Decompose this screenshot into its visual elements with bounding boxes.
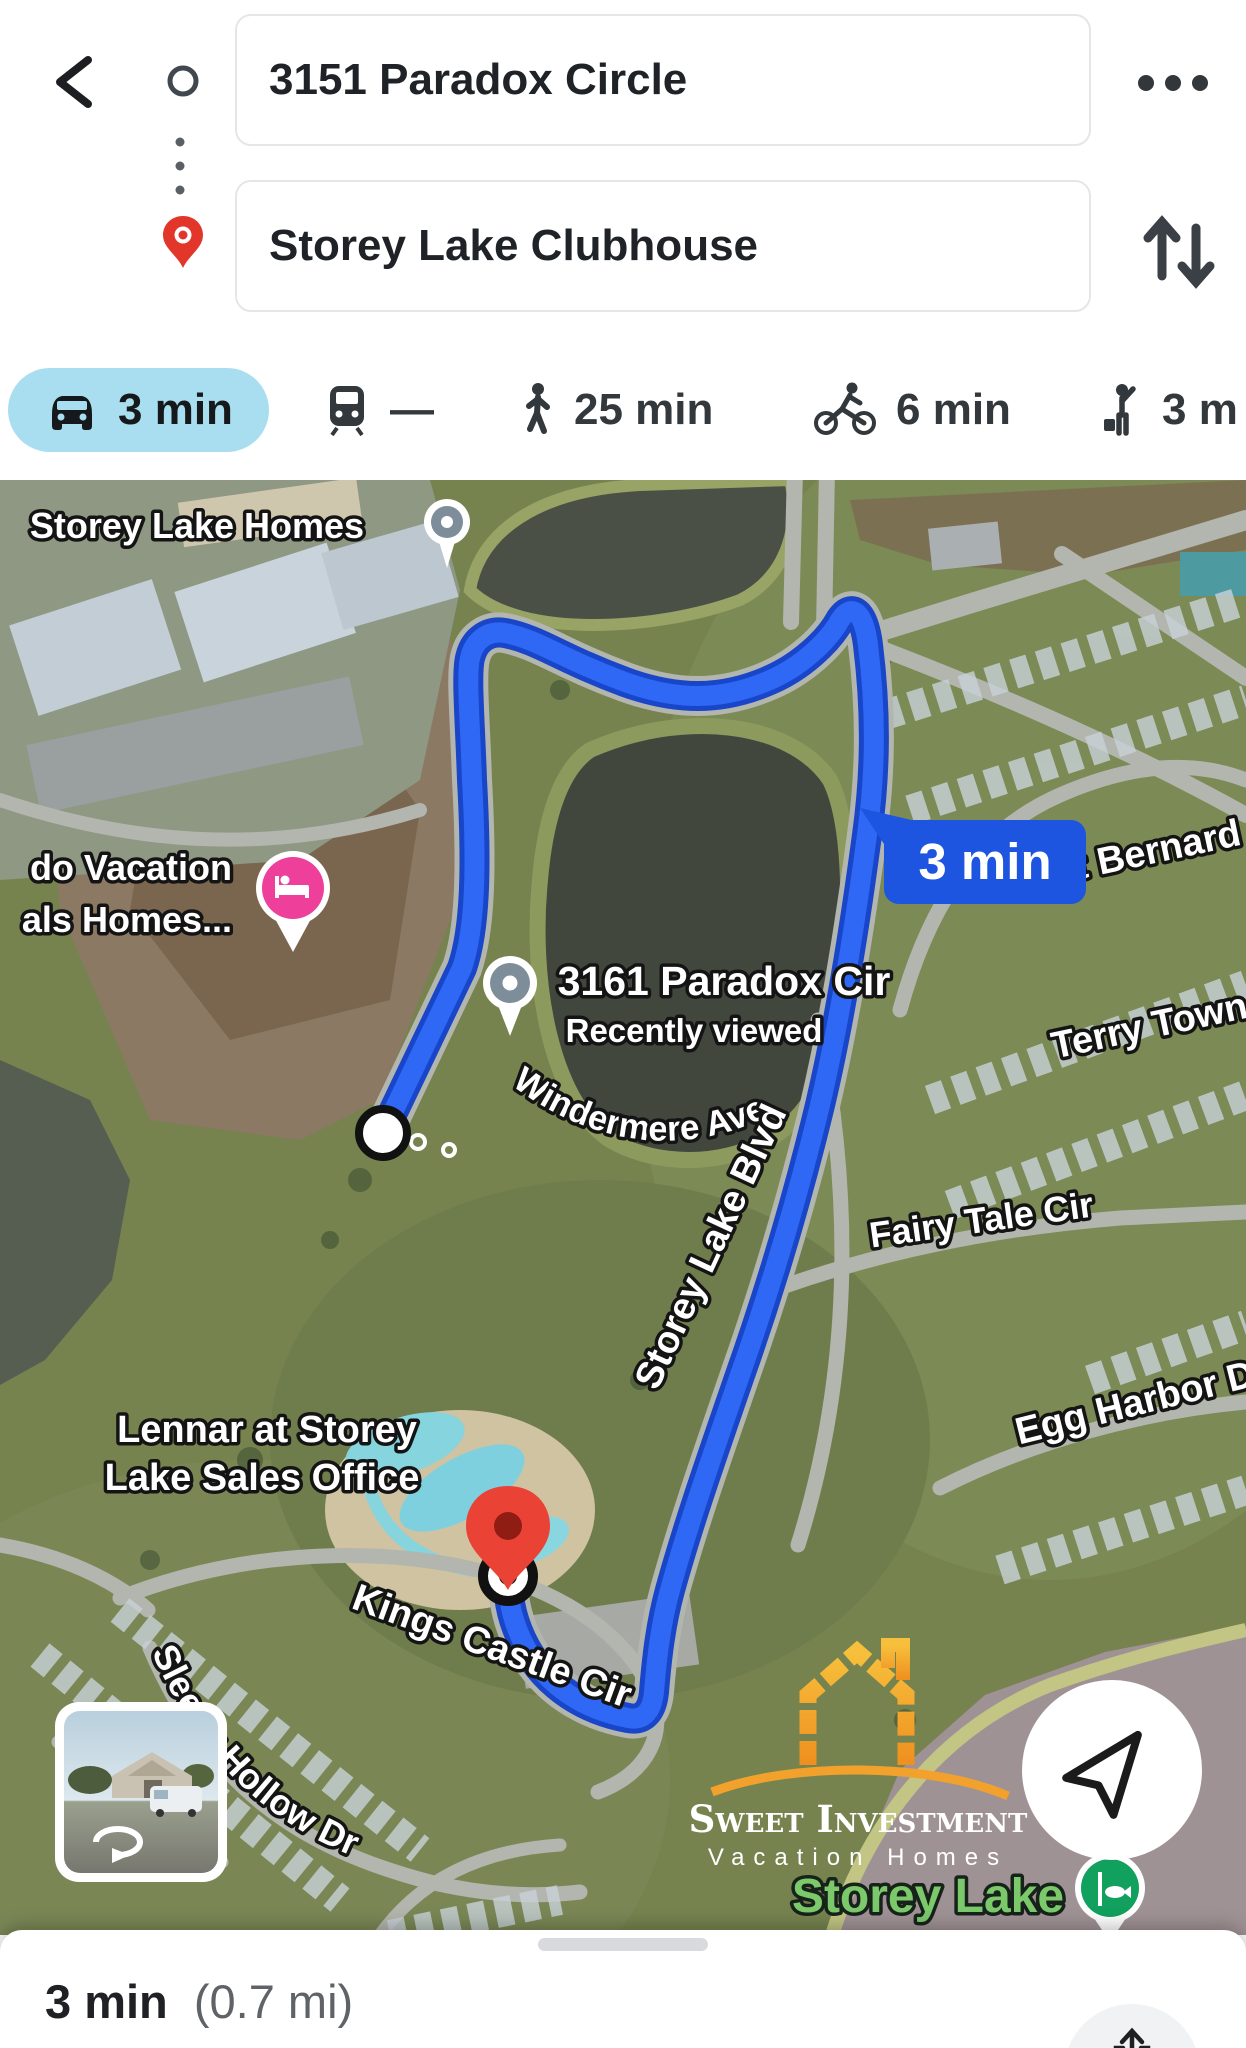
- overflow-menu-button[interactable]: [1130, 68, 1220, 98]
- share-icon: [1106, 2026, 1158, 2048]
- mode-ride-label: 3 m: [1162, 385, 1238, 435]
- label-storey-lake-green: Storey Lake: [792, 1870, 1064, 1923]
- mode-tab-walk[interactable]: 25 min: [516, 368, 713, 452]
- trip-duration: 3 min: [45, 1975, 168, 2028]
- satellite-map[interactable]: Storey Lake Homes Windermere Ave do Vaca…: [0, 480, 1246, 1935]
- google-maps-directions-screen: Storey Lake Homes Windermere Ave do Vaca…: [0, 0, 1246, 2048]
- origin-text: 3151 Paradox Circle: [269, 55, 687, 105]
- label-recently-viewed: Recently viewed: [566, 1012, 823, 1049]
- mode-walk-label: 25 min: [574, 385, 713, 435]
- trip-summary: 3 min (0.7 mi): [45, 1974, 353, 2029]
- mode-tab-transit[interactable]: —: [322, 368, 434, 452]
- street-view-thumbnail[interactable]: [55, 1702, 227, 1882]
- swap-locations-button[interactable]: [1140, 210, 1220, 294]
- origin-dot-icon: [164, 62, 204, 102]
- back-button[interactable]: [48, 52, 104, 112]
- mode-tab-drive[interactable]: 3 min: [8, 368, 269, 452]
- bottom-sheet: 3 min (0.7 mi): [0, 1930, 1246, 2048]
- watermark-line1: Sweet Investment: [689, 1797, 1028, 1841]
- label-lennar-1: Lennar at Storey: [117, 1409, 417, 1451]
- walk-icon: [516, 381, 556, 439]
- sheet-drag-handle[interactable]: [538, 1938, 708, 1951]
- train-icon: [322, 383, 372, 437]
- trip-distance: (0.7 mi): [194, 1975, 353, 2028]
- route-dots-connector: [172, 132, 188, 202]
- ride-hail-icon: [1102, 381, 1144, 439]
- label-paradox-cir: 3161 Paradox Cir: [558, 958, 891, 1004]
- destination-pin-icon: [158, 212, 208, 274]
- mode-transit-label: —: [390, 385, 434, 435]
- label-vacation-2: als Homes...: [22, 899, 232, 940]
- navigate-button[interactable]: [1022, 1680, 1202, 1860]
- destination-input[interactable]: Storey Lake Clubhouse: [235, 180, 1091, 312]
- origin-input[interactable]: 3151 Paradox Circle: [235, 14, 1091, 146]
- watermark-line2: Vacation Homes: [708, 1844, 1008, 1871]
- car-icon: [44, 384, 100, 436]
- destination-text: Storey Lake Clubhouse: [269, 221, 758, 271]
- label-storey-lake-homes: Storey Lake Homes: [30, 505, 364, 546]
- mode-drive-label: 3 min: [118, 385, 233, 435]
- route-time-callout[interactable]: 3 min: [860, 808, 1086, 904]
- callout-time-text: 3 min: [918, 833, 1051, 890]
- map-canvas: Storey Lake Homes Windermere Ave do Vaca…: [0, 480, 1246, 1935]
- label-lennar-2: Lake Sales Office: [105, 1457, 420, 1499]
- mode-tab-ride[interactable]: 3 m: [1102, 368, 1238, 452]
- mode-tab-bike[interactable]: 6 min: [812, 368, 1011, 452]
- mode-bike-label: 6 min: [896, 385, 1011, 435]
- label-vacation-1: do Vacation: [30, 847, 232, 888]
- directions-header: 3151 Paradox Circle Storey Lake Clubhous…: [0, 0, 1246, 480]
- bicycle-icon: [812, 381, 878, 439]
